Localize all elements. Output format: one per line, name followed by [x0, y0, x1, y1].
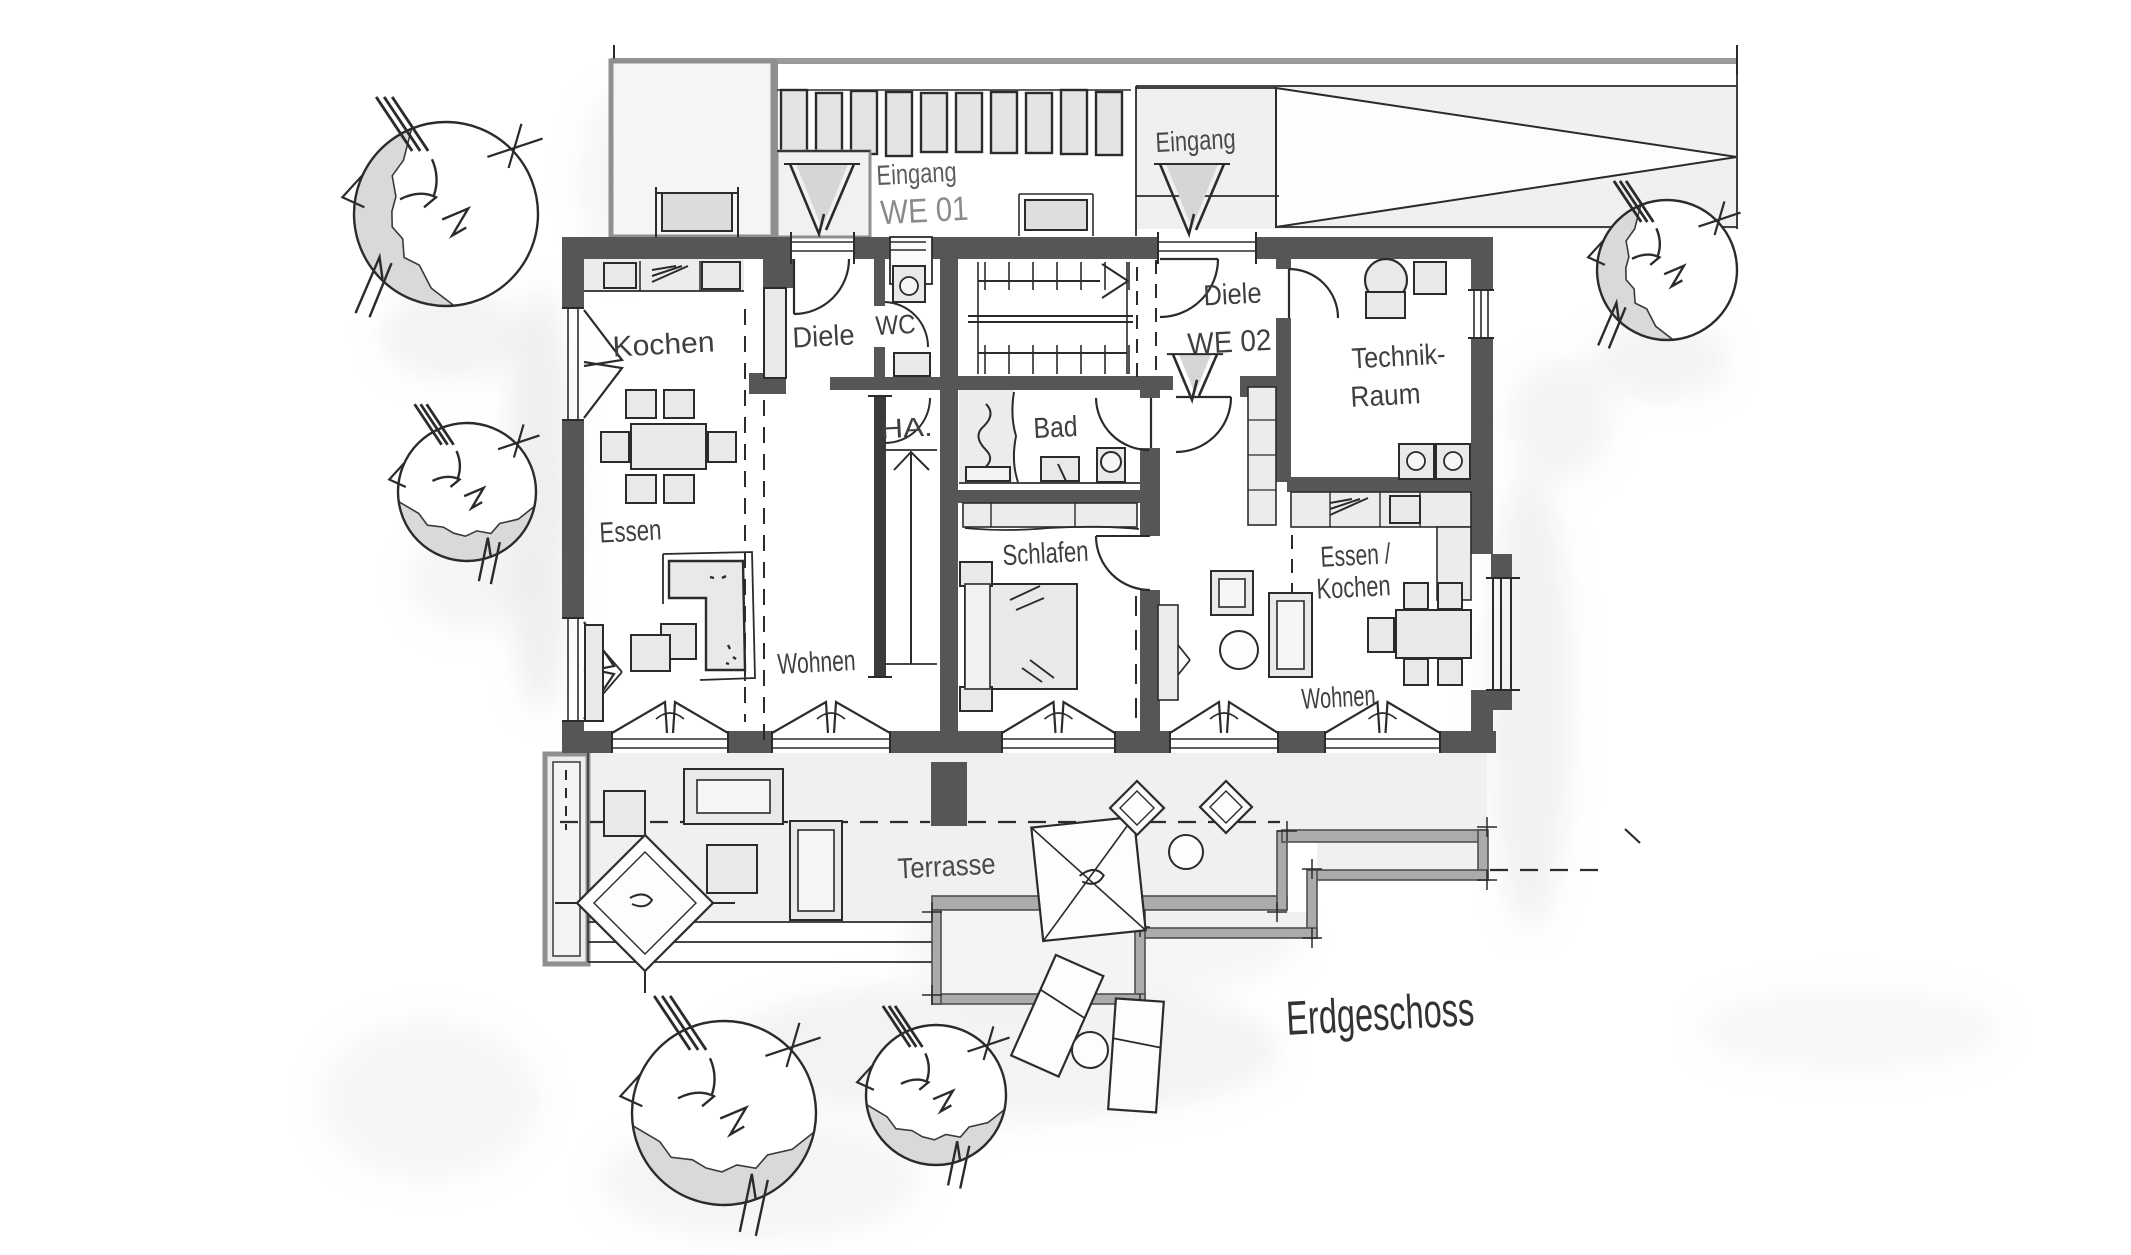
svg-text:Eingang: Eingang: [876, 156, 958, 191]
svg-text:Kochen: Kochen: [612, 326, 716, 363]
svg-text:Kochen: Kochen: [1316, 570, 1392, 606]
svg-text:Diele: Diele: [1203, 278, 1263, 313]
svg-text:Schlafen: Schlafen: [1002, 536, 1090, 572]
svg-text:Bad: Bad: [1033, 411, 1079, 445]
svg-text:WC: WC: [875, 309, 917, 341]
svg-text:Essen /: Essen /: [1320, 538, 1392, 574]
svg-text:Raum: Raum: [1350, 378, 1422, 414]
svg-text:Diele: Diele: [792, 319, 856, 354]
svg-text:HA.: HA.: [880, 412, 933, 445]
svg-text:Erdgeschoss: Erdgeschoss: [1285, 983, 1476, 1046]
svg-text:Essen: Essen: [599, 514, 663, 549]
svg-text:Terrasse: Terrasse: [897, 848, 997, 885]
svg-text:WE 01: WE 01: [879, 190, 969, 233]
svg-text:Wohnen: Wohnen: [777, 645, 857, 681]
svg-text:Technik-: Technik-: [1351, 339, 1447, 376]
svg-text:Eingang: Eingang: [1155, 123, 1237, 158]
svg-text:Wohnen: Wohnen: [1301, 680, 1377, 716]
